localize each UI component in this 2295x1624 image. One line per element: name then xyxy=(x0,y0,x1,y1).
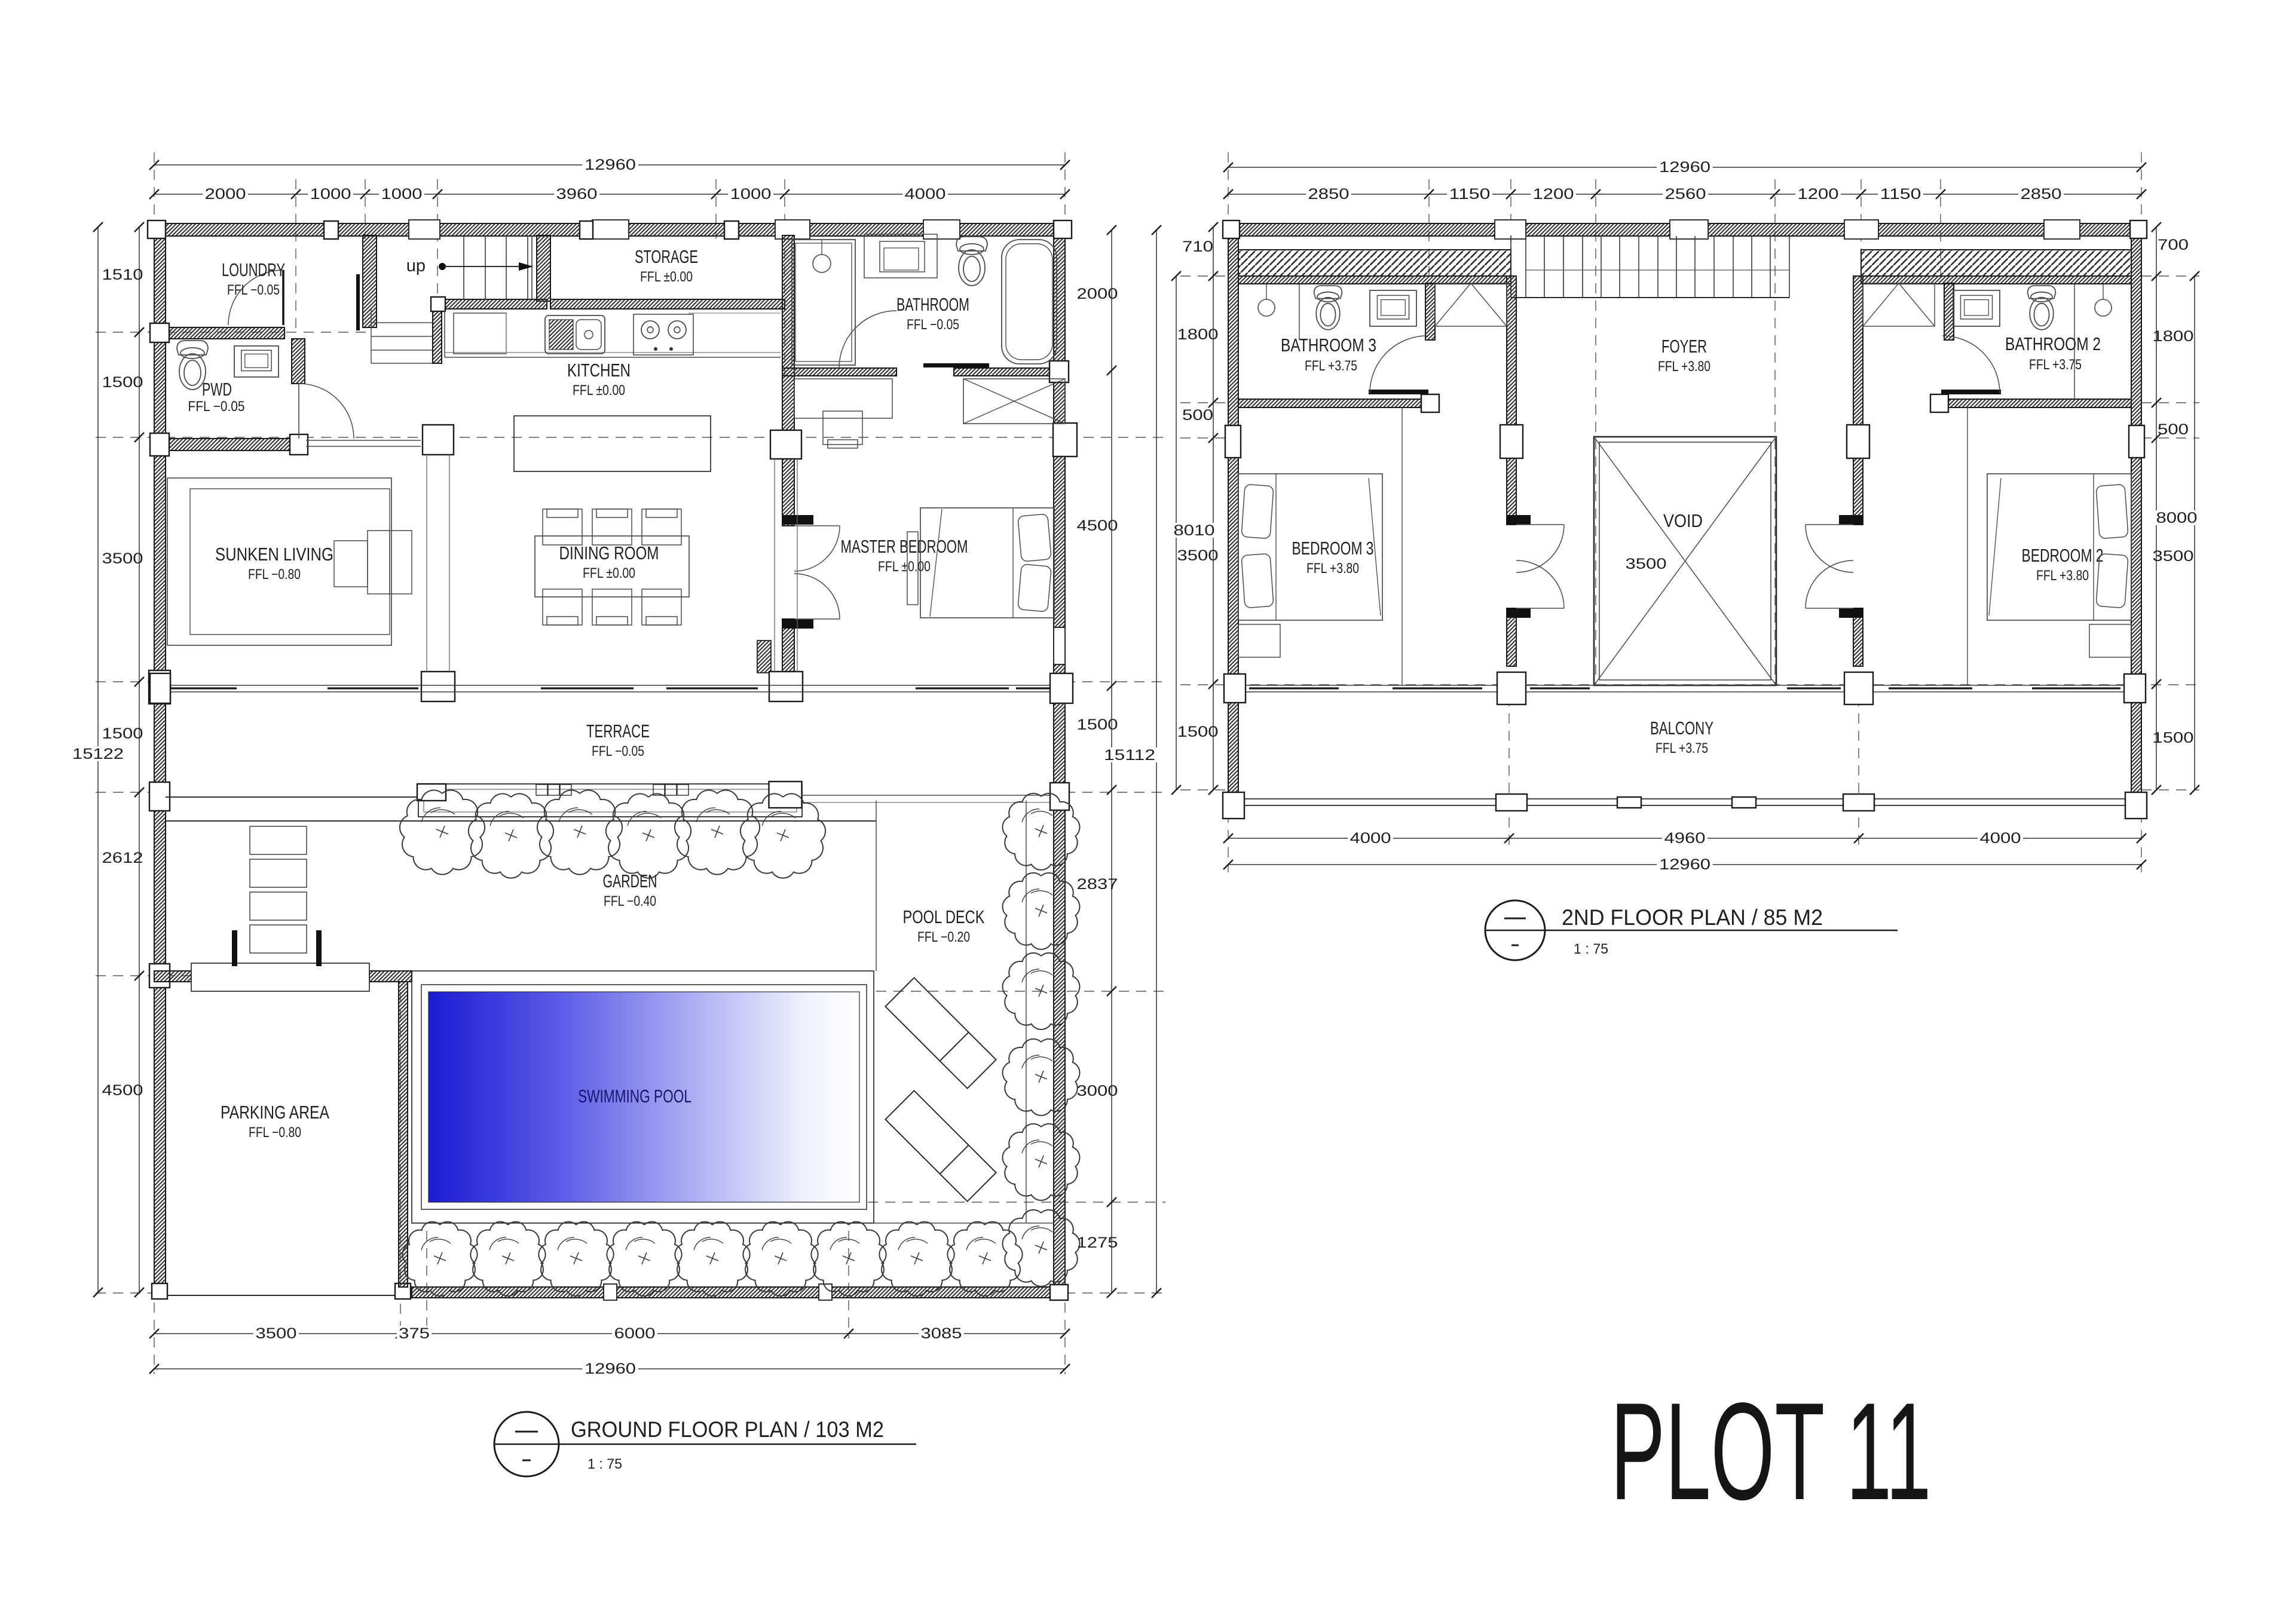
svg-text:MASTER BEDROOM: MASTER BEDROOM xyxy=(841,536,968,557)
svg-text:1500: 1500 xyxy=(102,725,143,742)
svg-text:BALCONY: BALCONY xyxy=(1650,718,1713,739)
svg-text:3960: 3960 xyxy=(556,186,598,203)
svg-text:FFL +3.80: FFL +3.80 xyxy=(1658,358,1710,375)
svg-text:2560: 2560 xyxy=(1665,186,1706,203)
svg-text:8010: 8010 xyxy=(1174,522,1215,539)
svg-text:4960: 4960 xyxy=(1664,830,1706,847)
svg-text:1 : 75: 1 : 75 xyxy=(1574,941,1608,957)
svg-text:15122: 15122 xyxy=(72,746,124,762)
svg-text:1500: 1500 xyxy=(2153,730,2194,746)
svg-text:1200: 1200 xyxy=(1798,186,1839,203)
svg-text:12960: 12960 xyxy=(1659,159,1710,176)
svg-text:FFL ±0.00: FFL ±0.00 xyxy=(583,565,635,581)
svg-text:FOYER: FOYER xyxy=(1661,336,1707,357)
svg-text:1500: 1500 xyxy=(1077,716,1118,733)
svg-text:POOL DECK: POOL DECK xyxy=(903,906,985,927)
svg-text:1150: 1150 xyxy=(1449,186,1491,203)
svg-text:1500: 1500 xyxy=(1177,724,1219,740)
svg-text:1150: 1150 xyxy=(1880,186,1921,203)
svg-text:FFL −0.20: FFL −0.20 xyxy=(917,929,970,945)
svg-text:BATHROOM 3: BATHROOM 3 xyxy=(1281,335,1376,356)
svg-text:3500: 3500 xyxy=(2153,548,2194,565)
svg-text:up: up xyxy=(406,256,426,275)
svg-text:1510: 1510 xyxy=(102,266,143,283)
svg-text:2612: 2612 xyxy=(102,850,143,866)
svg-text:15112: 15112 xyxy=(1104,747,1155,764)
svg-text:FFL ±0.00: FFL ±0.00 xyxy=(878,559,931,575)
svg-text:FFL +3.75: FFL +3.75 xyxy=(1656,740,1708,756)
svg-text:PARKING AREA: PARKING AREA xyxy=(221,1102,329,1123)
svg-text:FFL −0.05: FFL −0.05 xyxy=(188,399,245,415)
svg-text:710: 710 xyxy=(1182,238,1213,255)
svg-text:FFL +3.80: FFL +3.80 xyxy=(1306,560,1359,577)
svg-text:FFL −0.05: FFL −0.05 xyxy=(592,743,644,759)
svg-text:4500: 4500 xyxy=(102,1082,143,1099)
svg-text:1275: 1275 xyxy=(1077,1234,1118,1251)
svg-text:700: 700 xyxy=(2158,237,2189,253)
svg-text:500: 500 xyxy=(2158,421,2189,438)
svg-text:12960: 12960 xyxy=(1659,856,1710,873)
svg-text:FFL ±0.00: FFL ±0.00 xyxy=(573,382,625,399)
svg-text:3500: 3500 xyxy=(1626,556,1667,572)
svg-text:500: 500 xyxy=(1182,407,1213,424)
svg-text:LOUNDRY: LOUNDRY xyxy=(222,259,285,280)
svg-text:BEDROOM 2: BEDROOM 2 xyxy=(2022,545,2104,566)
svg-text:6000: 6000 xyxy=(614,1325,656,1342)
svg-text:1800: 1800 xyxy=(2153,328,2194,345)
svg-text:3500: 3500 xyxy=(1177,547,1219,564)
svg-text:4000: 4000 xyxy=(1350,830,1391,847)
svg-text:2850: 2850 xyxy=(2021,186,2062,203)
svg-text:3085: 3085 xyxy=(921,1325,962,1342)
svg-text:375: 375 xyxy=(399,1325,430,1342)
svg-text:PLOT 11: PLOT 11 xyxy=(1611,1374,1932,1529)
svg-text:PWD: PWD xyxy=(202,379,232,400)
svg-text:FFL +3.75: FFL +3.75 xyxy=(2029,357,2082,373)
svg-text:1500: 1500 xyxy=(102,374,143,391)
svg-text:12960: 12960 xyxy=(585,157,636,173)
svg-text:DINING ROOM: DINING ROOM xyxy=(559,543,659,563)
svg-text:SUNKEN LIVING: SUNKEN LIVING xyxy=(215,544,333,565)
svg-text:TERRACE: TERRACE xyxy=(586,721,650,741)
svg-text:STORAGE: STORAGE xyxy=(635,246,698,267)
svg-text:GROUND FLOOR PLAN / 103 M2: GROUND FLOOR PLAN / 103 M2 xyxy=(571,1417,884,1442)
svg-text:FFL −0.80: FFL −0.80 xyxy=(248,566,301,583)
svg-text:1 : 75: 1 : 75 xyxy=(587,1456,622,1472)
svg-text:1200: 1200 xyxy=(1533,186,1574,203)
svg-text:FFL +3.75: FFL +3.75 xyxy=(1305,358,1357,374)
svg-text:FFL −0.40: FFL −0.40 xyxy=(604,893,656,909)
svg-text:FFL ±0.00: FFL ±0.00 xyxy=(640,269,693,285)
svg-text:1000: 1000 xyxy=(730,186,772,203)
svg-text:1000: 1000 xyxy=(381,186,423,203)
svg-text:4000: 4000 xyxy=(905,186,946,203)
svg-text:2837: 2837 xyxy=(1077,876,1118,893)
svg-text:2000: 2000 xyxy=(205,186,246,203)
svg-text:SWIMMING POOL: SWIMMING POOL xyxy=(578,1086,691,1107)
svg-text:FFL −0.80: FFL −0.80 xyxy=(249,1124,301,1141)
svg-text:4500: 4500 xyxy=(1077,517,1118,534)
svg-text:BATHROOM 2: BATHROOM 2 xyxy=(2005,333,2101,354)
svg-text:1000: 1000 xyxy=(310,186,351,203)
svg-text:1800: 1800 xyxy=(1177,326,1219,343)
svg-text:VOID: VOID xyxy=(1663,510,1703,531)
svg-text:8000: 8000 xyxy=(2156,510,2198,526)
svg-text:3500: 3500 xyxy=(256,1325,297,1342)
svg-text:BEDROOM 3: BEDROOM 3 xyxy=(1292,538,1374,559)
svg-text:2000: 2000 xyxy=(1077,286,1118,302)
svg-text:4000: 4000 xyxy=(1980,830,2021,847)
svg-text:3500: 3500 xyxy=(102,550,143,567)
svg-text:FFL −0.05: FFL −0.05 xyxy=(227,282,280,298)
svg-text:12960: 12960 xyxy=(585,1361,636,1377)
svg-text:2ND FLOOR PLAN / 85 M2: 2ND FLOOR PLAN / 85 M2 xyxy=(1562,905,1823,930)
svg-text:FFL −0.05: FFL −0.05 xyxy=(907,317,959,333)
svg-text:FFL +3.80: FFL +3.80 xyxy=(2036,568,2089,584)
svg-text:3000: 3000 xyxy=(1077,1083,1118,1099)
svg-text:2850: 2850 xyxy=(1308,186,1350,203)
svg-text:KITCHEN: KITCHEN xyxy=(567,360,631,381)
svg-text:BATHROOM: BATHROOM xyxy=(896,294,969,315)
